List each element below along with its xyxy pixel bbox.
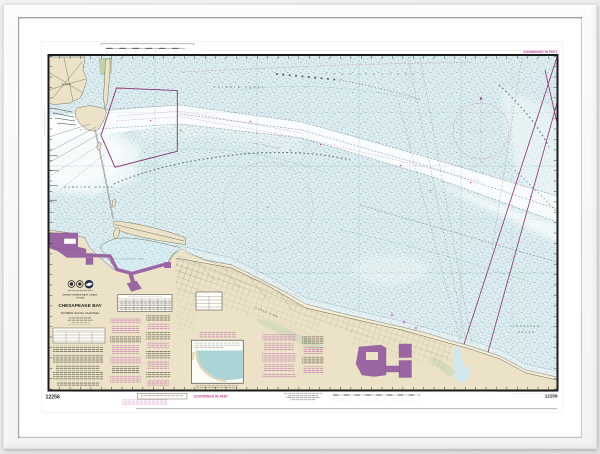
svg-text:SOUNDINGS IN FEET: SOUNDINGS IN FEET xyxy=(194,394,228,398)
svg-text:PHOEBUS: PHOEBUS xyxy=(61,84,71,86)
svg-text:THIMBLE SHOAL CHANNEL: THIMBLE SHOAL CHANNEL xyxy=(60,311,100,315)
svg-text:C H E S A P E A K E B A Y: C H E S A P E A K E B A Y xyxy=(325,72,426,76)
svg-text:WILLOUGHBY BAY: WILLOUGHBY BAY xyxy=(112,258,145,261)
svg-text:CHESAPEAKE BAY: CHESAPEAKE BAY xyxy=(58,303,102,308)
svg-text:HAMPTON ROADS: HAMPTON ROADS xyxy=(64,185,115,189)
svg-text:THIMBLE SHOAL: THIMBLE SHOAL xyxy=(214,85,266,89)
svg-text:12256: 12256 xyxy=(46,394,61,400)
svg-text:LYNNHAVEN: LYNNHAVEN xyxy=(510,325,540,328)
svg-text:UNITED STATES EAST COAST: UNITED STATES EAST COAST xyxy=(63,293,99,296)
svg-text:VIRGINIA: VIRGINIA xyxy=(76,296,85,299)
svg-text:SOUNDINGS IN FEET: SOUNDINGS IN FEET xyxy=(523,50,557,54)
svg-text:ROADS: ROADS xyxy=(518,331,536,334)
